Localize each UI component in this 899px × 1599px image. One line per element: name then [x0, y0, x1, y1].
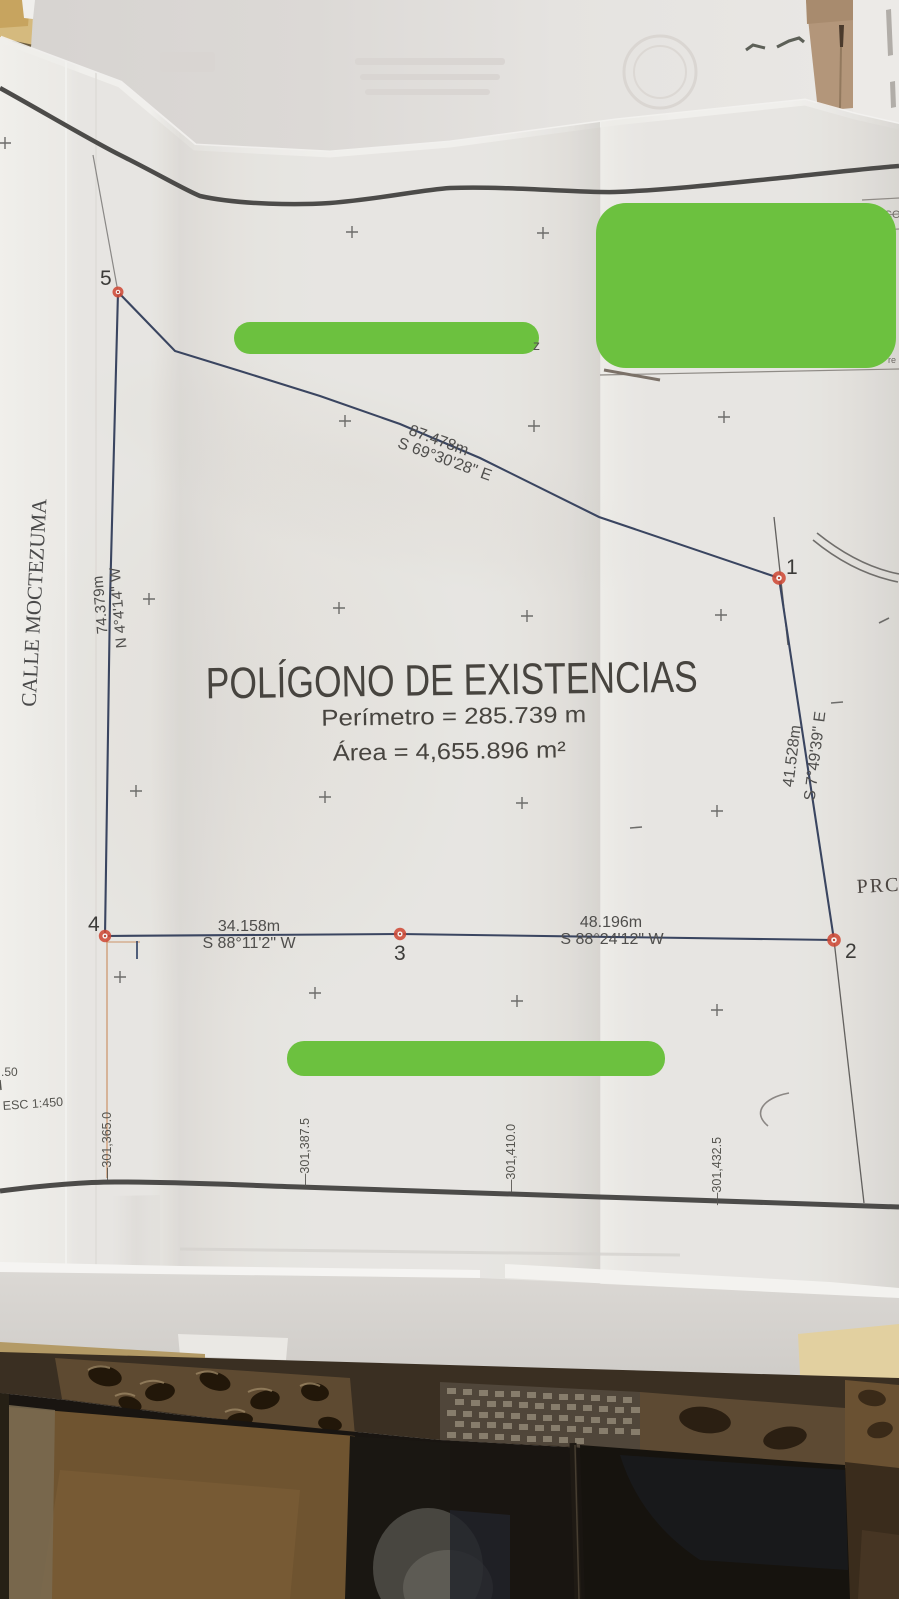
svg-text:Área = 4,655.896 m²: Área = 4,655.896 m²: [333, 736, 567, 765]
svg-text:S 88°24'12" W: S 88°24'12" W: [560, 931, 664, 948]
svg-text:PRC: PRC: [856, 874, 899, 898]
svg-text:2: 2: [845, 940, 857, 963]
svg-text:5: 5: [100, 267, 112, 290]
svg-text:z: z: [533, 337, 540, 353]
svg-text:4: 4: [88, 913, 100, 936]
svg-text:Perímetro = 285.739 m: Perímetro = 285.739 m: [321, 701, 586, 731]
svg-text:1: 1: [786, 556, 798, 579]
svg-text:S 88°11'2" W: S 88°11'2" W: [202, 935, 296, 952]
svg-text:—301,387.5: —301,387.5: [298, 1118, 312, 1186]
svg-text:—301,365.0: —301,365.0: [100, 1112, 114, 1180]
svg-text:POLÍGONO DE EXISTENCIAS: POLÍGONO DE EXISTENCIAS: [205, 653, 698, 709]
svg-text:—301,410.0: —301,410.0: [504, 1124, 518, 1192]
svg-text:3: 3: [394, 942, 406, 965]
svg-text:34.158m: 34.158m: [218, 918, 280, 935]
svg-text:48.196m: 48.196m: [580, 914, 642, 931]
svg-text:—301,432.5: —301,432.5: [710, 1137, 724, 1205]
svg-text:.50: .50: [1, 1065, 18, 1079]
